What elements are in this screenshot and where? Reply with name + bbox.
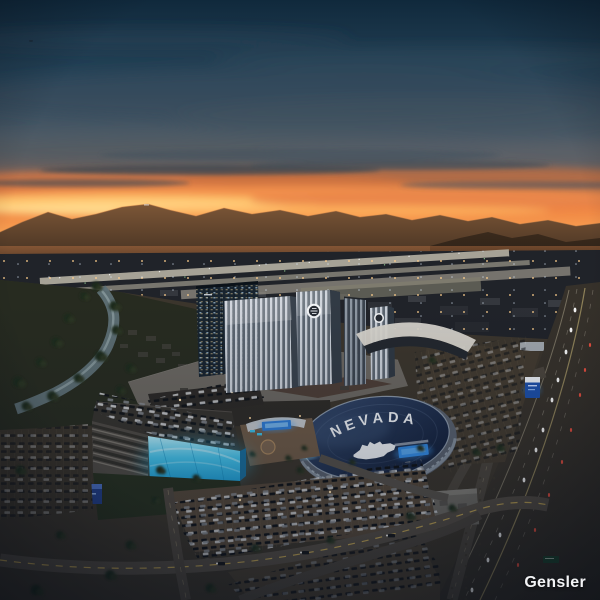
aerial-rendering-canvas: NEVADA xyxy=(0,0,600,600)
rendered-scene: NEVADA xyxy=(0,0,600,600)
vignette xyxy=(0,0,600,600)
gensler-watermark: Gensler xyxy=(524,574,586,592)
